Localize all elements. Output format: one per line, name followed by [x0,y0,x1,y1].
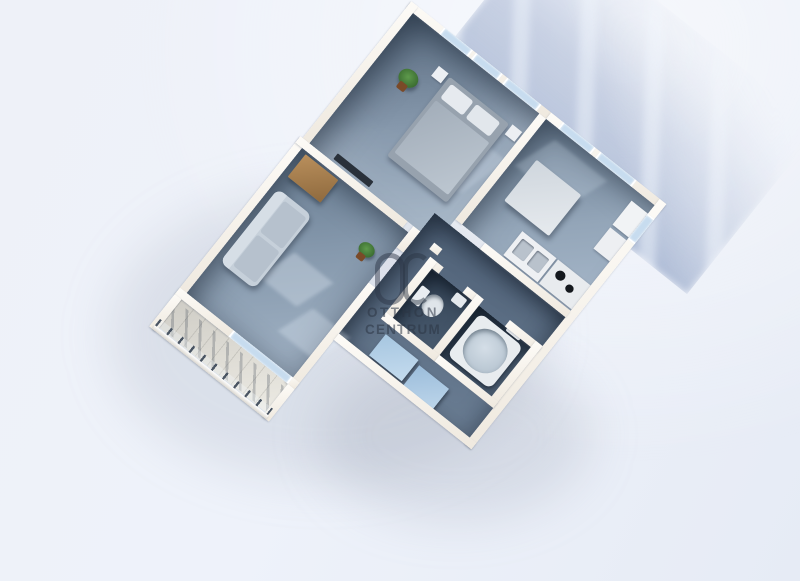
otthon-centrum-logo-icon [344,252,462,300]
stove-burner [564,283,576,295]
floorplan-render-canvas: { "scene": { "type": "3d-floorplan-rende… [0,0,800,581]
watermark: OTTHON CENTRUM [344,252,462,338]
logo-letter-o [375,253,405,305]
watermark-line2: CENTRUM [344,321,462,338]
stove-burner [553,269,567,283]
logo-letter-c [403,253,431,305]
watermark-line1: OTTHON [344,304,462,321]
